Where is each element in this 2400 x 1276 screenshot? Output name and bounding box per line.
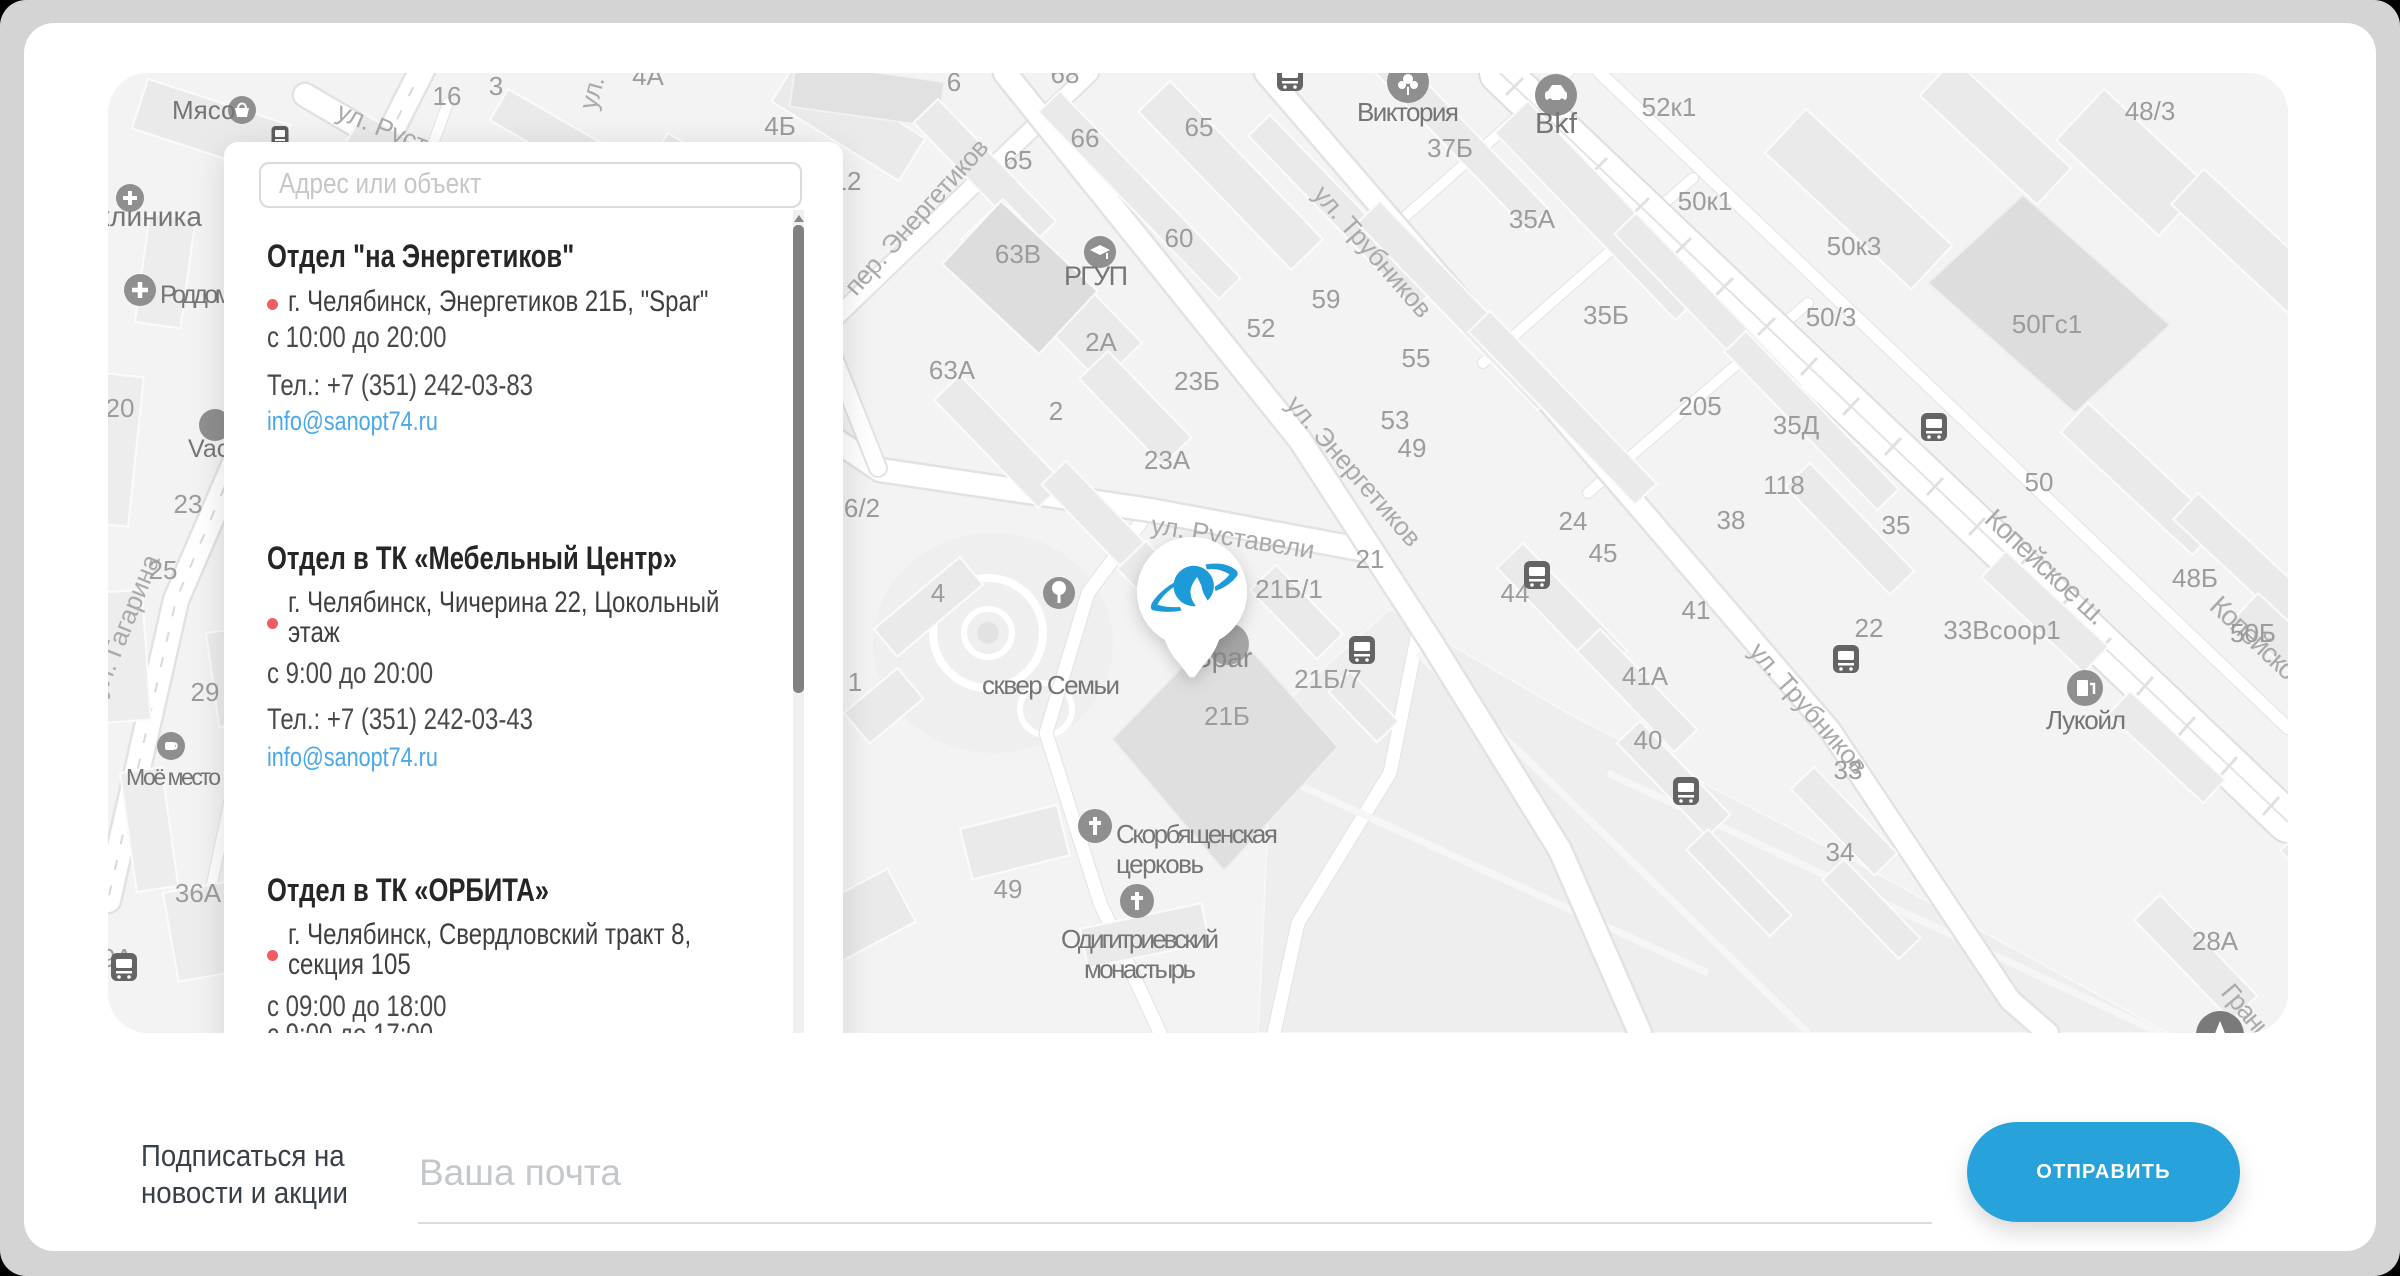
svg-text:49: 49: [994, 874, 1023, 904]
svg-text:Виктория: Виктория: [1357, 97, 1459, 127]
svg-text:205: 205: [1678, 391, 1721, 421]
svg-text:50: 50: [2025, 467, 2054, 497]
svg-text:Мясо: Мясо: [172, 95, 236, 125]
svg-text:Поликлиника: Поликлиника: [108, 201, 202, 232]
svg-text:Моё место: Моё место: [126, 764, 221, 790]
svg-text:45: 45: [1589, 538, 1618, 568]
svg-text:36А: 36А: [175, 878, 222, 908]
svg-text:24: 24: [1559, 506, 1588, 536]
svg-text:63В: 63В: [995, 239, 1041, 269]
svg-text:22: 22: [1855, 613, 1884, 643]
svg-text:4А: 4А: [632, 73, 664, 91]
svg-text:23А: 23А: [1144, 445, 1191, 475]
svg-text:церковь: церковь: [1116, 849, 1204, 879]
svg-text:48Б: 48Б: [2172, 563, 2218, 593]
svg-text:Скорбященская: Скорбященская: [1116, 819, 1278, 849]
svg-text:23: 23: [174, 489, 203, 519]
svg-text:63А: 63А: [929, 355, 976, 385]
svg-text:Bkf: Bkf: [1535, 108, 1578, 140]
svg-text:4Б: 4Б: [764, 111, 796, 141]
svg-text:1: 1: [848, 667, 862, 697]
svg-text:52к1: 52к1: [1642, 92, 1697, 122]
svg-text:35: 35: [1882, 510, 1911, 540]
svg-text:50Гс1: 50Гс1: [2012, 309, 2082, 339]
svg-text:сквер Семьи: сквер Семьи: [982, 670, 1120, 700]
svg-text:68: 68: [1051, 73, 1080, 89]
svg-text:35Д: 35Д: [1773, 410, 1820, 440]
svg-text:59: 59: [1312, 284, 1341, 314]
svg-text:28А: 28А: [2192, 926, 2239, 956]
svg-text:48/3: 48/3: [2125, 96, 2176, 126]
svg-text:52: 52: [1247, 313, 1276, 343]
svg-text:50к3: 50к3: [1827, 231, 1882, 261]
svg-text:65: 65: [1185, 112, 1214, 142]
svg-text:29: 29: [191, 677, 220, 707]
svg-text:РГУП: РГУП: [1064, 261, 1128, 291]
svg-text:66: 66: [1071, 123, 1100, 153]
svg-text:2: 2: [1049, 396, 1063, 426]
svg-text:41А: 41А: [1622, 661, 1669, 691]
svg-text:118: 118: [1763, 470, 1804, 500]
svg-text:53: 53: [1381, 405, 1410, 435]
svg-text:60: 60: [1165, 223, 1194, 253]
svg-text:38: 38: [1717, 505, 1746, 535]
svg-text:41: 41: [1682, 595, 1711, 625]
svg-text:55: 55: [1402, 343, 1431, 373]
svg-text:3: 3: [489, 73, 503, 101]
svg-text:2А: 2А: [1085, 327, 1117, 357]
svg-text:35Б: 35Б: [1583, 300, 1629, 330]
svg-text:Одигитриевский: Одигитриевский: [1061, 924, 1219, 954]
svg-text:34: 34: [1826, 837, 1855, 867]
svg-text:65: 65: [1004, 145, 1033, 175]
svg-text:33А: 33А: [2287, 824, 2288, 854]
svg-text:21Б/1: 21Б/1: [1255, 574, 1323, 604]
svg-text:монастырь: монастырь: [1084, 954, 1196, 984]
svg-text:35А: 35А: [1509, 204, 1556, 234]
svg-text:50к1: 50к1: [1678, 186, 1733, 216]
svg-text:40: 40: [1634, 725, 1663, 755]
svg-text:23Б: 23Б: [1174, 366, 1220, 396]
svg-text:Роддом: Роддом: [160, 281, 232, 309]
svg-text:33Всоор1: 33Всоор1: [1943, 615, 2060, 645]
svg-text:21Б: 21Б: [1204, 701, 1250, 731]
svg-text:6: 6: [947, 73, 961, 97]
svg-text:21Б/7: 21Б/7: [1294, 664, 1362, 694]
svg-text:6/2: 6/2: [844, 493, 880, 523]
svg-text:4: 4: [931, 578, 945, 608]
svg-text:Лукойл: Лукойл: [2046, 705, 2126, 735]
svg-text:20: 20: [108, 393, 134, 423]
svg-text:37Б: 37Б: [1427, 133, 1473, 163]
svg-text:25: 25: [149, 555, 178, 585]
svg-text:49: 49: [1398, 433, 1427, 463]
svg-text:33: 33: [1834, 755, 1863, 785]
svg-text:16: 16: [433, 81, 462, 111]
svg-text:21: 21: [1356, 544, 1385, 574]
svg-text:50Б: 50Б: [2230, 618, 2276, 648]
svg-text:50/3: 50/3: [1806, 302, 1857, 332]
